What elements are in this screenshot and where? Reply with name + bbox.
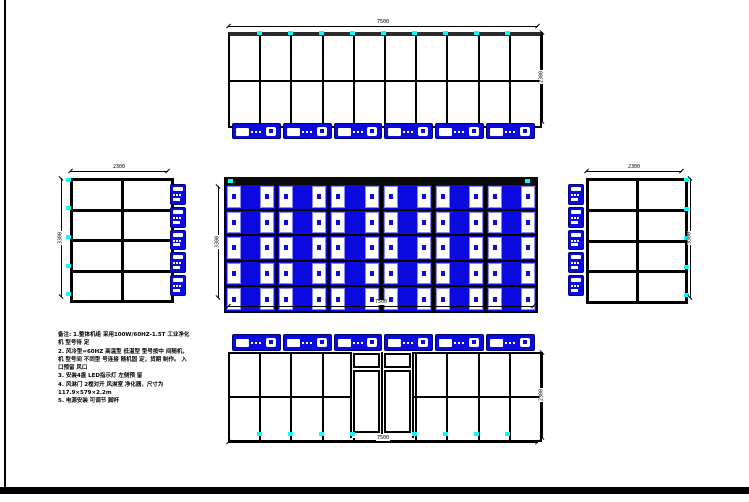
cabinet-door-left [384, 212, 398, 234]
cabinet-cell [487, 262, 536, 286]
dimension-plan-width: 7500 [228, 306, 534, 307]
cabinet-door-left [436, 237, 450, 259]
ac-unit [486, 123, 535, 139]
panel-cell [511, 82, 540, 126]
cabinet-door-left [331, 263, 345, 285]
ac-unit-vents [571, 240, 580, 242]
panel-cell [511, 36, 540, 80]
cabinet-door-left [279, 186, 293, 208]
dimension-label: 2300 [112, 165, 126, 170]
ac-unit-panel [439, 339, 452, 347]
ac-unit-vents [173, 194, 182, 196]
panel-cell [589, 212, 636, 240]
cyan-marker [684, 207, 689, 211]
panel-cell [73, 273, 121, 301]
note-line: 备注: 1.整体机组 采用100W/60HZ-1.5T 工业净化 [58, 331, 218, 339]
ac-unit [435, 334, 484, 351]
ac-unit-vents [403, 131, 415, 133]
dimension-label: 3300 [216, 235, 221, 249]
ac-unit-grille [571, 266, 578, 269]
cabinet-column [278, 185, 327, 311]
panel-cell [324, 82, 353, 126]
ac-unit-vents [173, 262, 182, 264]
cabinet-cell [278, 185, 327, 209]
ac-unit-vents [353, 342, 365, 344]
ac-unit-vents [173, 240, 182, 242]
cabinet-cell [435, 236, 484, 260]
cyan-marker [257, 432, 262, 436]
panel-cell [386, 82, 415, 126]
door-panel [353, 370, 380, 433]
ac-unit-panel [439, 128, 452, 136]
ac-unit-fan [266, 338, 276, 347]
panel-cell [261, 354, 290, 396]
cabinet-door-left [436, 212, 450, 234]
cabinet-door-right [469, 237, 483, 259]
notes-block: 备注: 1.整体机组 采用100W/60HZ-1.5T 工业净化机 型号待 定2… [58, 331, 218, 405]
panel-cell [589, 181, 636, 209]
cabinet-cell [383, 185, 432, 209]
dimension-label: 7500 [376, 20, 390, 25]
ac-unit-panel [173, 210, 183, 214]
ac-unit-panel [571, 278, 581, 282]
ac-unit-panel [388, 339, 401, 347]
cabinet-door-right [521, 237, 535, 259]
cabinet-door-right [312, 212, 326, 234]
ac-unit-panel [388, 128, 401, 136]
cabinet-door-left [227, 237, 241, 259]
ac-unit [568, 184, 584, 205]
dimension-label: 7500 [374, 300, 388, 305]
cyan-marker [66, 264, 71, 268]
cyan-marker [443, 31, 448, 35]
ac-unit-vents [571, 194, 580, 196]
ac-unit [568, 252, 584, 273]
cyan-marker [66, 178, 71, 182]
cyan-marker [257, 31, 262, 35]
ac-unit-grille [173, 243, 180, 246]
cabinet-cell [383, 236, 432, 260]
cabinet-door-right [417, 212, 431, 234]
ac-unit-panel [236, 128, 249, 136]
note-line: 4. 风淋门 2樘对开 风淋室 净化器，尺寸为 [58, 381, 218, 389]
cabinet-cell [487, 287, 536, 311]
ac-unit-panel [173, 278, 183, 282]
dimension-top-height: 2300 [542, 32, 543, 122]
cabinet-door-left [227, 186, 241, 208]
ac-unit [170, 184, 186, 205]
cabinet-door-right [469, 186, 483, 208]
right-side-grid [586, 178, 688, 304]
note-line: 机 型号间 不同型 号连接 随机固 定，货期 制作。 入 [58, 356, 218, 364]
ac-unit-panel [490, 128, 503, 136]
cabinet-cell [487, 236, 536, 260]
cabinet-cell [435, 185, 484, 209]
cabinet-door-right [469, 212, 483, 234]
left-cyan-markers [66, 178, 71, 297]
plan-view-grid [224, 177, 538, 313]
cabinet-door-right [365, 263, 379, 285]
cabinet-cell [435, 287, 484, 311]
panel-cell [124, 273, 172, 301]
panel-cell [589, 273, 636, 301]
ac-unit-fan [469, 127, 479, 136]
panel-cell [73, 181, 121, 209]
cabinet-door-right [469, 263, 483, 285]
ac-unit [283, 334, 332, 351]
panel-cell [448, 354, 477, 396]
cabinet-column [226, 185, 275, 311]
panel-cell [261, 36, 290, 80]
panel-cell [448, 36, 477, 80]
cyan-marker [288, 31, 293, 35]
cabinet-door-right [417, 263, 431, 285]
note-line: 3. 安装4盏 LED指示灯 左侧预 留 [58, 372, 218, 380]
panel-cell [261, 82, 290, 126]
cabinet-door-right [417, 237, 431, 259]
cabinet-door-left [488, 212, 502, 234]
ac-unit [232, 123, 281, 139]
ac-unit [384, 123, 433, 139]
bottom-ac-units-row [232, 334, 535, 351]
cabinet-door-right [312, 263, 326, 285]
panel-cell [124, 212, 172, 240]
ac-unit-panel [338, 339, 351, 347]
dimension-label: 2300 [627, 165, 641, 170]
cabinet-cell [226, 185, 275, 209]
cabinet-door-left [488, 263, 502, 285]
panel-cell [417, 354, 446, 396]
ac-unit-panel [173, 187, 183, 191]
cabinet-cell [383, 287, 432, 311]
dimension-left-width: 2300 [70, 171, 168, 172]
cabinet-cell [226, 287, 275, 311]
cabinet-column [487, 185, 536, 311]
ac-unit-fan [418, 127, 428, 136]
cabinet-cell [278, 236, 327, 260]
entrance-door-assembly [350, 352, 414, 438]
ac-unit-vents [571, 262, 580, 264]
ac-unit-fan [266, 127, 276, 136]
cyan-marker [288, 432, 293, 436]
panel-cell [417, 36, 446, 80]
ac-unit-vents [173, 285, 182, 287]
ac-unit-vents [505, 131, 517, 133]
panel-cell [639, 181, 686, 209]
ac-unit-grille [173, 266, 180, 269]
cabinet-cell [383, 262, 432, 286]
cabinet-cell [330, 262, 379, 286]
ac-unit-panel [287, 128, 300, 136]
ac-unit [170, 230, 186, 251]
ac-unit-fan [367, 127, 377, 136]
door-leaf [352, 352, 381, 438]
cabinet-door-left [279, 237, 293, 259]
panel-cell [639, 273, 686, 301]
cyan-marker [684, 178, 689, 182]
cabinet-cell [435, 262, 484, 286]
cabinet-door-right [312, 186, 326, 208]
cabinet-door-right [365, 186, 379, 208]
panel-cell [355, 36, 384, 80]
cabinet-cell [330, 185, 379, 209]
cyan-marker [350, 31, 355, 35]
panel-cell [639, 243, 686, 271]
cabinet-cell [278, 287, 327, 311]
ac-unit [283, 123, 332, 139]
ac-unit [568, 230, 584, 251]
ac-unit-fan [317, 338, 327, 347]
cabinet-column [330, 185, 379, 311]
note-line: 口预留 风口 [58, 364, 218, 372]
cabinet-column [383, 185, 432, 311]
cabinet-cell [278, 211, 327, 235]
panel-cell [639, 212, 686, 240]
ac-unit [384, 334, 433, 351]
note-line: 机 型号待 定 [58, 339, 218, 347]
ac-unit-grille [173, 289, 180, 292]
ac-unit-fan [520, 338, 530, 347]
cyan-marker [381, 31, 386, 35]
cyan-marker [66, 292, 71, 296]
plan-cyan-marker-right [525, 179, 530, 183]
cabinet-door-right [365, 237, 379, 259]
panel-cell [73, 212, 121, 240]
ac-unit-vents [173, 217, 182, 219]
cyan-marker [319, 31, 324, 35]
note-line: 2. 风冷型=60HZ 高温型 低温型 型号按中 间随机， [58, 348, 218, 356]
ac-unit-vents [251, 131, 263, 133]
panel-cell [355, 82, 384, 126]
dimension-right-height: 3300 [690, 178, 691, 298]
dimension-label: 3300 [59, 230, 64, 244]
sheet-border-bottom [0, 487, 749, 494]
panel-cell [292, 82, 321, 126]
panel-cell [324, 36, 353, 80]
ac-unit-grille [571, 221, 578, 224]
dimension-label: 2300 [540, 70, 545, 84]
ac-unit [170, 275, 186, 296]
cabinet-door-left [384, 237, 398, 259]
ac-unit-vents [505, 342, 517, 344]
cyan-marker [505, 31, 510, 35]
ac-unit-vents [571, 285, 580, 287]
right-ac-units-column [568, 184, 584, 296]
ac-unit-panel [173, 255, 183, 259]
cabinet-door-left [331, 186, 345, 208]
ac-unit-panel [338, 128, 351, 136]
note-line: 117.9×579×2.2m [58, 389, 218, 397]
ac-unit-panel [571, 255, 581, 259]
panel-cell [417, 82, 446, 126]
cabinet-door-left [227, 263, 241, 285]
cabinet-door-left [331, 237, 345, 259]
dimension-label: 2300 [540, 388, 545, 402]
cabinet-door-left [488, 186, 502, 208]
ac-unit-panel [490, 339, 503, 347]
cyan-marker [412, 432, 417, 436]
ac-unit-fan [520, 127, 530, 136]
cabinet-door-right [521, 263, 535, 285]
ac-unit-vents [454, 342, 466, 344]
ac-unit [232, 334, 281, 351]
cabinet-door-left [436, 263, 450, 285]
cyan-marker [412, 31, 417, 35]
left-side-grid [70, 178, 174, 303]
ac-unit [334, 123, 383, 139]
note-line: 5. 电源安装 可调节 脚杯 [58, 397, 218, 405]
cyan-marker [443, 432, 448, 436]
dimension-right-width: 2300 [586, 171, 682, 172]
ac-unit-panel [571, 233, 581, 237]
ac-unit [334, 334, 383, 351]
cabinet-cell [487, 211, 536, 235]
cyan-marker [66, 235, 71, 239]
door-leaf [383, 352, 412, 438]
dimension-bottom-width: 7500 [228, 442, 538, 443]
cabinet-door-left [331, 212, 345, 234]
sheet-border-left [4, 0, 6, 490]
cabinet-door-left [279, 212, 293, 234]
cabinet-cell [330, 236, 379, 260]
cabinet-door-left [436, 186, 450, 208]
ac-unit-grille [571, 289, 578, 292]
plan-cyan-marker-left [228, 179, 233, 183]
drawing-sheet: 7500 2300 3300 7500 2300 3300 2300 3300 [0, 0, 749, 502]
panel-cell [589, 243, 636, 271]
ac-unit-vents [302, 131, 314, 133]
ac-unit-panel [571, 187, 581, 191]
cyan-marker [319, 432, 324, 436]
cyan-marker [684, 265, 689, 269]
transom-window [384, 353, 411, 368]
cabinet-door-right [312, 237, 326, 259]
cyan-marker [350, 432, 355, 436]
cyan-marker [474, 31, 479, 35]
panel-cell [124, 242, 172, 270]
panel-cell [230, 354, 259, 396]
ac-unit-vents [251, 342, 263, 344]
cabinet-cell [487, 185, 536, 209]
cabinet-cell [383, 211, 432, 235]
ac-unit [170, 207, 186, 228]
cabinet-door-right [260, 263, 274, 285]
ac-unit-vents [302, 342, 314, 344]
ac-unit-fan [317, 127, 327, 136]
cabinet-cell [330, 211, 379, 235]
ac-unit-panel [571, 210, 581, 214]
dimension-left-height: 3300 [61, 178, 62, 297]
cabinet-door-left [227, 212, 241, 234]
transom-window [353, 353, 380, 368]
cabinet-column [435, 185, 484, 311]
ac-unit [568, 275, 584, 296]
cabinet-door-right [417, 186, 431, 208]
ac-unit [568, 207, 584, 228]
panel-cell [511, 354, 540, 396]
ac-unit-vents [353, 131, 365, 133]
panel-cell [448, 82, 477, 126]
ac-unit [170, 252, 186, 273]
top-ac-units-row [232, 123, 535, 139]
dimension-label: 7500 [376, 436, 390, 441]
top-elevation-grid [228, 32, 542, 128]
panel-cell [230, 36, 259, 80]
ac-unit-grille [173, 221, 180, 224]
panel-cell [292, 354, 321, 396]
cabinet-cell [226, 211, 275, 235]
cabinet-cell [278, 262, 327, 286]
cabinet-cell [330, 287, 379, 311]
cabinet-door-left [279, 263, 293, 285]
left-ac-units-column [170, 184, 186, 296]
panel-cell [480, 36, 509, 80]
cabinet-door-right [521, 186, 535, 208]
ac-unit-panel [173, 233, 183, 237]
panel-cell [292, 36, 321, 80]
cabinet-door-right [260, 186, 274, 208]
panel-cell [480, 354, 509, 396]
panel-cell [230, 82, 259, 126]
cabinet-door-right [521, 212, 535, 234]
ac-unit-vents [403, 342, 415, 344]
panel-cell [386, 36, 415, 80]
panel-cell [324, 354, 353, 396]
ac-unit-fan [367, 338, 377, 347]
ac-unit-fan [469, 338, 479, 347]
cabinet-door-left [384, 186, 398, 208]
panel-cell [73, 242, 121, 270]
dimension-label: 3300 [688, 231, 693, 245]
cyan-marker [66, 206, 71, 210]
ac-unit [435, 123, 484, 139]
dimension-bottom-height: 2300 [542, 352, 543, 438]
ac-unit-grille [571, 198, 578, 201]
dimension-plan-depth: 3300 [218, 186, 219, 298]
ac-unit-vents [454, 131, 466, 133]
ac-unit [486, 334, 535, 351]
ac-unit-fan [418, 338, 428, 347]
cabinet-cell [226, 262, 275, 286]
door-panel [384, 370, 411, 433]
ac-unit-grille [571, 243, 578, 246]
panel-cell [124, 181, 172, 209]
cabinet-door-left [384, 263, 398, 285]
dimension-top-width: 7500 [228, 26, 538, 27]
cabinet-door-right [260, 237, 274, 259]
cabinet-door-left [488, 237, 502, 259]
ac-unit-grille [173, 198, 180, 201]
top-cyan-markers [228, 31, 538, 37]
cabinet-cell [435, 211, 484, 235]
ac-unit-panel [287, 339, 300, 347]
ac-unit-panel [236, 339, 249, 347]
cabinet-door-right [365, 212, 379, 234]
cyan-marker [505, 432, 510, 436]
panel-cell [480, 82, 509, 126]
cabinet-cell [226, 236, 275, 260]
cyan-marker [474, 432, 479, 436]
cabinet-door-right [260, 212, 274, 234]
ac-unit-vents [571, 217, 580, 219]
